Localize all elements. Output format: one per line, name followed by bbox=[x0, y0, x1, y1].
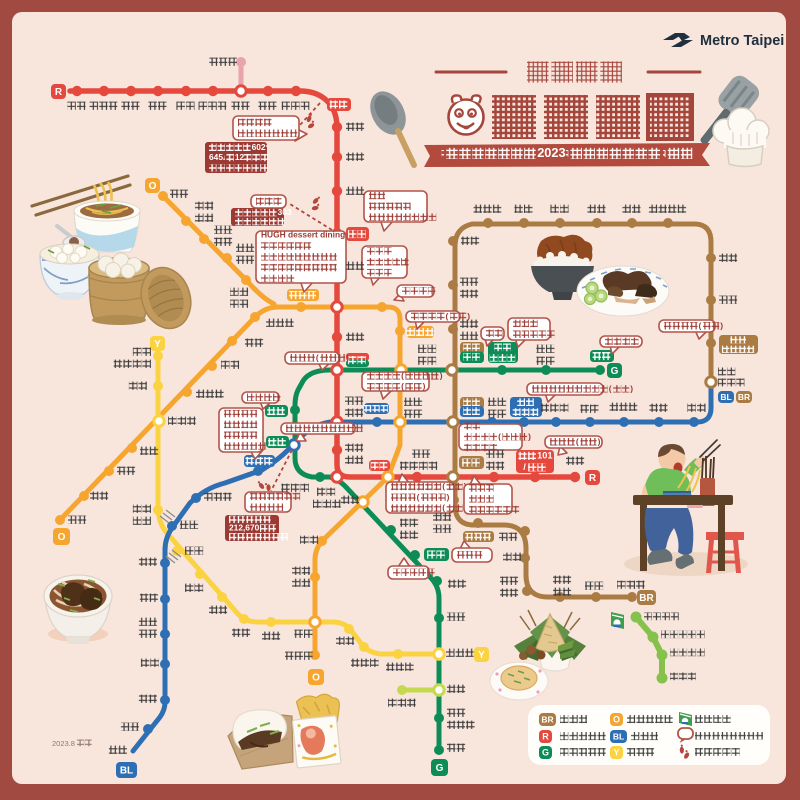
svg-text:/: / bbox=[523, 462, 526, 472]
svg-text:(: ( bbox=[576, 436, 579, 446]
svg-text:645: 645 bbox=[209, 152, 223, 162]
svg-text:G: G bbox=[542, 748, 549, 758]
svg-text:R: R bbox=[589, 473, 597, 484]
svg-text:): ) bbox=[346, 352, 349, 362]
svg-text:101: 101 bbox=[537, 451, 552, 461]
svg-text:(: ( bbox=[442, 481, 445, 491]
svg-text:BL: BL bbox=[720, 392, 731, 402]
svg-text:Y: Y bbox=[613, 748, 619, 758]
svg-text:Y: Y bbox=[478, 650, 485, 661]
svg-text:): ) bbox=[630, 383, 633, 393]
svg-text:(: ( bbox=[498, 431, 501, 441]
svg-text:(: ( bbox=[442, 503, 445, 513]
svg-text:(: ( bbox=[446, 311, 449, 321]
svg-text:(: ( bbox=[316, 352, 319, 362]
svg-text:BL: BL bbox=[120, 766, 133, 777]
svg-text:BR: BR bbox=[541, 715, 553, 725]
svg-text:HUGH dessert dining: HUGH dessert dining bbox=[261, 230, 345, 240]
svg-text:): ) bbox=[598, 436, 601, 446]
svg-text:(: ( bbox=[699, 320, 702, 330]
svg-text:Metro Taipei: Metro Taipei bbox=[700, 33, 784, 49]
svg-text:): ) bbox=[423, 381, 426, 391]
svg-text:): ) bbox=[720, 320, 723, 330]
svg-text:): ) bbox=[447, 492, 450, 502]
svg-text:(: ( bbox=[401, 370, 404, 380]
svg-text:2023.8: 2023.8 bbox=[52, 739, 75, 748]
svg-text:): ) bbox=[440, 370, 443, 380]
svg-text:212,670: 212,670 bbox=[229, 523, 260, 533]
svg-text:G: G bbox=[611, 366, 619, 377]
svg-text:R: R bbox=[55, 87, 63, 98]
svg-text:R: R bbox=[542, 732, 549, 742]
svg-text:O: O bbox=[58, 532, 66, 543]
svg-text:BL: BL bbox=[613, 732, 624, 742]
svg-text:): ) bbox=[528, 431, 531, 441]
svg-text:BR: BR bbox=[738, 392, 750, 402]
svg-text:(: ( bbox=[417, 492, 420, 502]
svg-text:O: O bbox=[312, 673, 320, 684]
svg-text:602: 602 bbox=[252, 142, 266, 152]
svg-text:O: O bbox=[149, 181, 157, 192]
svg-text:12: 12 bbox=[235, 152, 245, 162]
svg-text:BR: BR bbox=[639, 593, 654, 604]
svg-text:(: ( bbox=[401, 381, 404, 391]
svg-text:(: ( bbox=[609, 383, 612, 393]
svg-text:Y: Y bbox=[154, 339, 161, 350]
svg-text:O: O bbox=[613, 715, 620, 725]
svg-text:2023: 2023 bbox=[537, 145, 565, 160]
svg-text:): ) bbox=[467, 311, 470, 321]
svg-text:G: G bbox=[436, 763, 444, 774]
